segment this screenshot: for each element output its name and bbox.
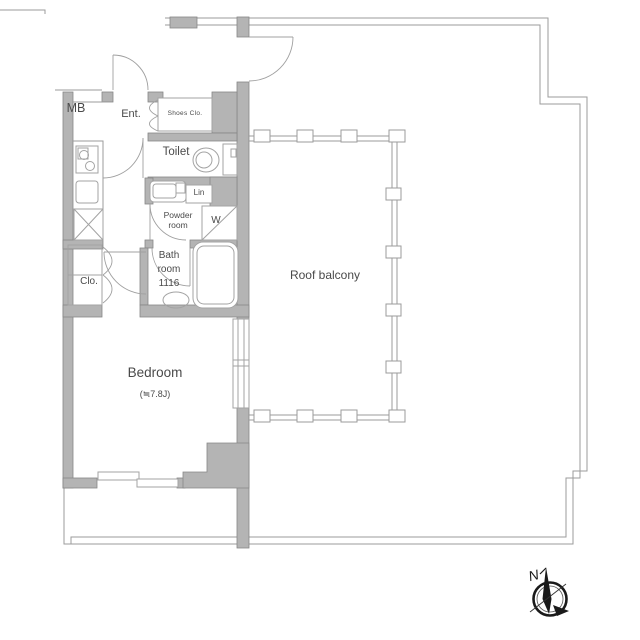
label-toilet: Toilet (152, 146, 200, 159)
label-powder-room: Powder room (150, 210, 206, 230)
label-washer: W (202, 215, 230, 227)
kitchen-sink (76, 181, 98, 203)
label-entrance: Ent. (112, 108, 150, 121)
label-roof-balcony: Roof balcony (270, 269, 380, 283)
door-arc-entrance (113, 55, 148, 90)
closet-area (68, 245, 146, 305)
label-closet: Clo. (72, 276, 106, 288)
label-meter-box: MB (60, 101, 92, 115)
refrigerator-space (74, 209, 103, 240)
bedroom-corner-wall (183, 443, 249, 488)
washbasin (150, 181, 186, 202)
bathtub (193, 242, 238, 308)
label-linen: Lin (186, 188, 212, 197)
floorplan: N MB Ent. Shoes Clo. Toilet Lin Powder r… (0, 0, 640, 640)
door-arc-toilet (103, 138, 143, 178)
compass-north-label: N (527, 566, 542, 584)
kitchen (73, 102, 103, 240)
bedroom-bottom-window (98, 472, 178, 487)
bedroom-side-window (233, 319, 249, 408)
label-bedroom-size: (≒7.8J) (110, 389, 200, 399)
compass-icon: N (527, 566, 569, 616)
door-arc-corridor (249, 37, 293, 81)
floor-plan-svg: N (0, 0, 640, 640)
label-bedroom: Bedroom (110, 365, 200, 381)
label-shoes-closet: Shoes Clo. (159, 110, 211, 117)
shoes-closet-doors (150, 100, 159, 131)
label-bath-room: Bath room 1116 (147, 249, 191, 291)
